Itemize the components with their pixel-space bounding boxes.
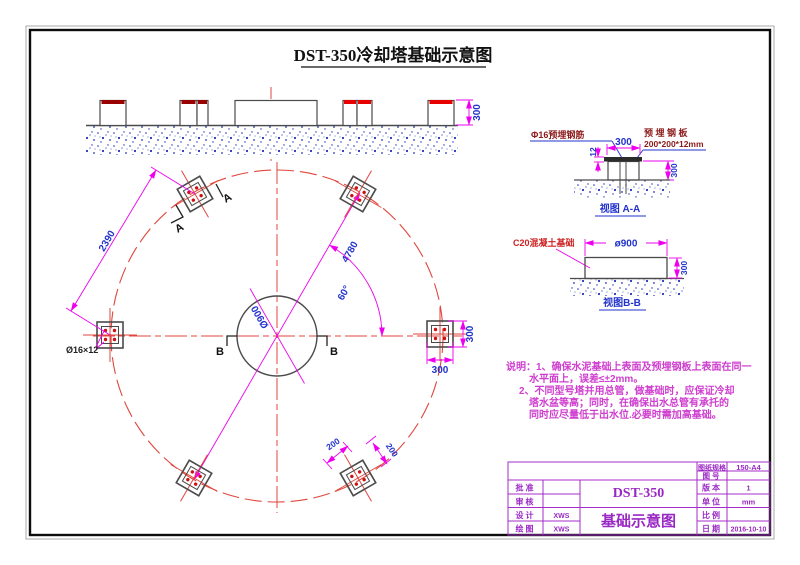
note-line-4: 塔水盆等高；同时，在确保出水总管有承托的 [529,396,729,409]
dim-plate-200b: 200 [384,441,400,459]
angle-arc [330,245,383,336]
section-label-b2: B [330,346,338,358]
aa-dim-thickness: 12 [588,147,604,172]
dim-plate-200a: 200 [324,436,342,452]
dim-anchor-300-v: 300 [465,325,476,342]
drawing-sheet: DST-350冷却塔基础示意图 300 [0,0,800,565]
soil-hatch [86,126,458,155]
caption-view-aa: 视图 A-A [600,202,641,215]
approve-label: 批准 [516,483,536,493]
dim-2390: 2390 [97,229,118,254]
anchor-pedestal-lower-right [321,441,395,515]
title-block: 图纸规格 150-A4 图号 批准 审核 设计 绘图 XWS XWS 版本 1 … [508,462,770,535]
view-aa: Φ16预埋钢筋 预埋钢板 200*200*12mm 300 12 300 [530,127,706,216]
plate-size-label: 200*200*12mm [644,139,704,149]
dim-elevation-300: 300 [472,104,483,121]
version-value: 1 [746,484,750,493]
plan-view: 4780 Ø900 60° 2390 300 300 [66,157,476,515]
notes-block: 说明：1、确保水泥基础上表面及预埋钢板上表面在同一 水平面上，误差≤±2mm。 … [506,360,752,421]
unit-label: 单位 [702,497,722,507]
page-title: DST-350冷却塔基础示意图 [294,45,493,65]
plate-label: 预埋钢板 [644,127,690,138]
drawing-no-label: 图号 [703,472,722,481]
aa-dim-top: 300 [607,137,640,155]
section-label-a1: A [173,221,186,235]
design-label: 设计 [516,510,536,520]
drawing-title: DST-350冷却塔基础示意图 [294,45,493,67]
draft-label: 绘图 [516,524,536,534]
dim-bb-900: ø900 [615,239,638,250]
anchor-pedestal-lower-left [157,441,231,515]
anchor-pedestal-upper-right [321,157,395,231]
bb-dim-width: ø900 [585,239,667,257]
version-label: 版本 [701,483,722,493]
bb-foundation-block [570,258,684,297]
dim-aa-300-top: 300 [615,137,632,148]
section-label-a2: A [221,191,234,205]
foundation-blocks [100,100,454,126]
dim-aa-12: 12 [588,147,598,157]
spec-value: 150-A4 [736,463,761,472]
section-markers-a: A A [171,184,234,236]
dim-anchor-300-h: 300 [432,365,449,376]
drawing-canvas: DST-350冷却塔基础示意图 300 [0,0,800,565]
embedded-plate [604,157,642,162]
plate-dims-200: 200 200 [323,436,400,469]
date-value: 2016-10-10 [731,527,767,534]
chord-dim-2390: 2390 [66,167,195,335]
aa-pedestal [574,157,670,198]
concrete-label: C20混凝土基础 [513,237,575,248]
aa-dim-depth: 300 [641,161,679,180]
dim-o900: Ø900 [249,303,271,330]
elevation-height-dim: 300 [456,100,483,125]
note-line-3: 2、不同型号塔并用总管，做基础时，应保证冷却 [519,384,735,397]
rebar-label: Φ16预埋钢筋 [531,129,584,140]
unit-value: mm [742,498,756,507]
anchor-pedestal-right [413,307,467,361]
doc-title: 基础示意图 [600,512,676,530]
caption-view-bb: 视图B-B [603,296,641,309]
section-label-b1: B [216,346,224,358]
review-label: 审核 [516,497,536,507]
note-line-2: 水平面上，误差≤±2mm。 [528,372,643,385]
cross-section-view: 300 [86,87,483,161]
dim-60deg: 60° [336,284,353,303]
scale-label: 比例 [702,510,722,520]
view-bb: C20混凝土基础 ø900 300 视图B-B [513,237,689,310]
note-line-1: 说明：1、确保水泥基础上表面及预埋钢板上表面在同一 [506,360,752,373]
dim-aa-300-right: 300 [669,163,679,177]
dim-bb-300: 300 [679,261,689,275]
draft-value: XWS [554,527,570,534]
bb-dim-height: 300 [669,258,689,278]
anchor-bolt-label: Ø16×12 [66,345,98,355]
design-value: XWS [554,513,570,520]
note-line-5: 同时应尽量低于出水位.必要时需加高基础。 [529,408,722,421]
date-label: 日期 [702,524,722,534]
model-number: DST-350 [613,486,665,501]
